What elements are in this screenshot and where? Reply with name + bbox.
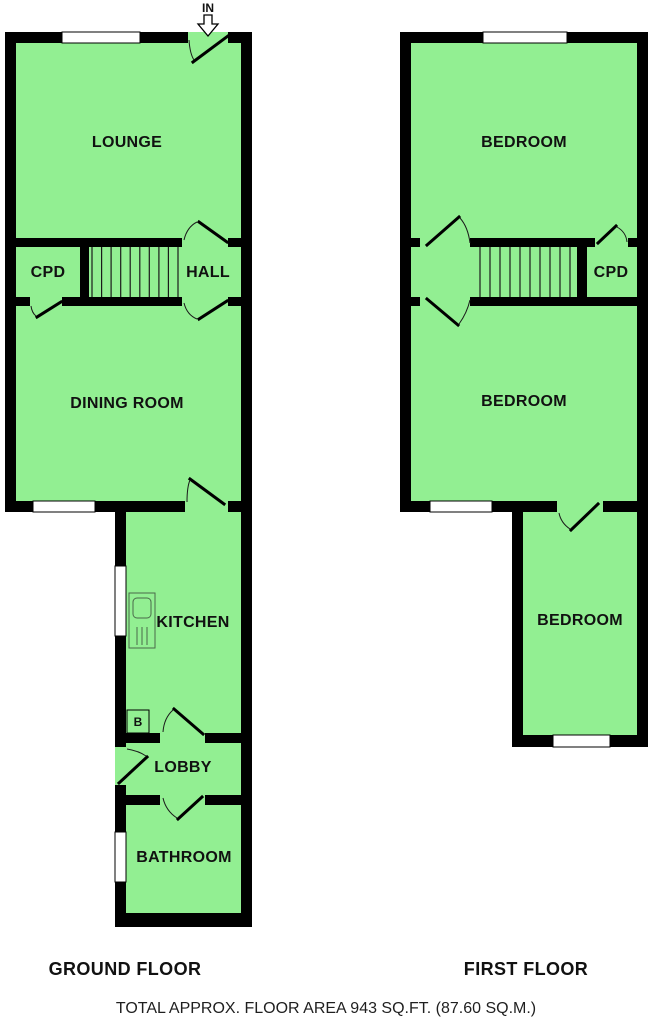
bedroom-front-label: BEDROOM bbox=[481, 134, 567, 151]
cpd-stairs-wall bbox=[80, 247, 89, 297]
floorplan-drawing: B IN LOUNGE CPD HALL DINING ROOM KITCHEN… bbox=[0, 0, 650, 1024]
ground-floor-title: GROUND FLOOR bbox=[49, 959, 202, 979]
room-landing bbox=[411, 247, 577, 297]
lounge-label: LOUNGE bbox=[92, 134, 162, 151]
hall-label: HALL bbox=[186, 264, 230, 281]
entrance-label: IN bbox=[202, 1, 214, 15]
floorplan-page: B IN LOUNGE CPD HALL DINING ROOM KITCHEN… bbox=[0, 0, 650, 1024]
bedroom-rear-label: BEDROOM bbox=[537, 612, 623, 629]
first-floor-title: FIRST FLOOR bbox=[464, 959, 588, 979]
lounge-window bbox=[62, 32, 140, 43]
first-floor-plan: BEDROOM CPD BEDROOM BEDROOM bbox=[400, 32, 648, 747]
ground-floor-plan: B IN LOUNGE CPD HALL DINING ROOM KITCHEN… bbox=[5, 1, 252, 927]
bedroom-rear-window bbox=[553, 735, 610, 747]
bathroom-label: BATHROOM bbox=[136, 849, 231, 866]
boiler-label: B bbox=[134, 715, 143, 729]
lobby-label: LOBBY bbox=[154, 759, 212, 776]
bedroom-middle-label: BEDROOM bbox=[481, 393, 567, 410]
stairs-cpd-wall bbox=[577, 247, 587, 297]
dining-label: DINING ROOM bbox=[70, 395, 184, 412]
dining-window bbox=[33, 501, 95, 512]
bedroom-front-window bbox=[483, 32, 567, 43]
kitchen-lobby-opening bbox=[160, 733, 205, 743]
cpd-ground-label: CPD bbox=[31, 264, 66, 281]
cpd-first-label: CPD bbox=[594, 264, 629, 281]
kitchen-label: KITCHEN bbox=[156, 614, 229, 631]
kitchen-window bbox=[115, 566, 126, 636]
total-area-text: TOTAL APPROX. FLOOR AREA 943 SQ.FT. (87.… bbox=[116, 1000, 536, 1017]
entrance-marker: IN bbox=[198, 1, 218, 36]
bathroom-window bbox=[115, 832, 126, 882]
bedroom-middle-window bbox=[430, 501, 492, 512]
